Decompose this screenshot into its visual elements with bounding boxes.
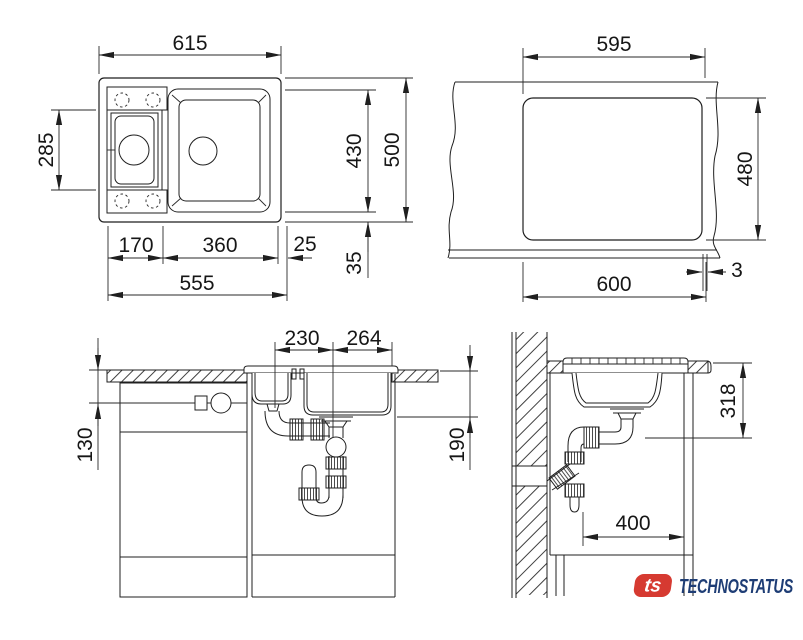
dim-base-width: 600	[596, 273, 631, 296]
main-bowl-outer	[168, 89, 270, 212]
break-line-left	[448, 82, 455, 258]
bowl-side-section	[572, 373, 662, 407]
dim-small-drain-offset: 230	[284, 327, 319, 350]
dim-bowl-depth: 190	[446, 427, 469, 462]
dim-basin-zone-height: 430	[343, 133, 366, 168]
pipe-coupling	[584, 427, 599, 448]
dim-edge-gap: 3	[731, 259, 743, 282]
cutout-outline	[523, 98, 702, 240]
tap-hole-mark	[115, 93, 129, 107]
pipe-coupling	[565, 452, 584, 464]
brand-logo: ts TECHNOSTATUS	[633, 574, 794, 598]
countertop-section-left	[107, 370, 247, 382]
wall-hatch	[516, 332, 547, 466]
side-waste	[618, 413, 636, 419]
small-bowl-inner	[115, 116, 154, 184]
side-section-view: 318 400	[512, 332, 752, 598]
pipe-coupling	[565, 484, 584, 497]
dim-side-gap: 25	[293, 233, 316, 256]
tap-hole-mark	[146, 93, 160, 107]
logo-monogram: ts	[643, 576, 663, 597]
main-bowl-waste	[325, 421, 347, 427]
pipe-coupling	[326, 476, 346, 488]
small-bowl-wall	[111, 113, 158, 187]
dim-overall-width: 615	[172, 32, 207, 55]
cabinet-left	[120, 383, 247, 597]
tap-hole-mark	[115, 194, 129, 208]
front-section-view: 230 264 130 190	[74, 327, 478, 597]
technical-drawing-page: 615 285 430 500 35 170 360 25 555	[0, 0, 803, 640]
dim-cutout-depth: 480	[734, 151, 757, 186]
pipe-coupling	[299, 488, 319, 500]
wall-hatch	[516, 486, 547, 595]
main-bowl-section	[304, 373, 391, 415]
tap-ledge-bottom	[107, 190, 167, 213]
dim-main-drain-offset: 264	[346, 327, 381, 350]
trap-cap	[570, 497, 579, 512]
dim-install-depth: 400	[615, 512, 650, 535]
dim-edge-margin: 35	[343, 251, 366, 274]
dim-small-bowl-width: 170	[118, 234, 153, 257]
sink-top-view: 615 285 430 500 35 170 360 25 555	[35, 32, 413, 301]
technical-drawing-canvas: 615 285 430 500 35 170 360 25 555	[0, 0, 803, 640]
sink-rim-section	[244, 366, 398, 373]
small-bowl-drain	[119, 135, 149, 165]
dim-connection-height: 130	[74, 427, 97, 462]
pipe-coupling	[290, 419, 303, 440]
break-line-right	[713, 82, 720, 258]
dim-bowl-section-height: 285	[35, 132, 58, 167]
connection-symbol-circle	[211, 393, 231, 413]
dim-cutout-width: 595	[596, 33, 631, 56]
pipe-coupling	[326, 457, 346, 469]
main-bowl-drain	[189, 137, 217, 165]
dim-overall-depth: 500	[381, 132, 404, 167]
countertop-cutout-view: 595 480 600 3	[448, 33, 766, 302]
pipe-coupling	[311, 419, 324, 440]
dim-main-bowl-width: 360	[202, 234, 237, 257]
connection-symbol-square	[195, 396, 207, 410]
dim-outlet-height: 318	[717, 383, 740, 418]
countertop-section-right	[392, 370, 438, 382]
small-bowl-waste	[267, 404, 279, 411]
main-bowl-inner	[179, 100, 260, 201]
sink-rim-side	[563, 358, 688, 373]
tap-ledge-top	[107, 87, 167, 110]
trap-union	[326, 437, 346, 457]
dim-bowls-span: 555	[179, 272, 214, 295]
tap-hole-mark	[146, 194, 160, 208]
brand-name: TECHNOSTATUS	[679, 576, 794, 598]
